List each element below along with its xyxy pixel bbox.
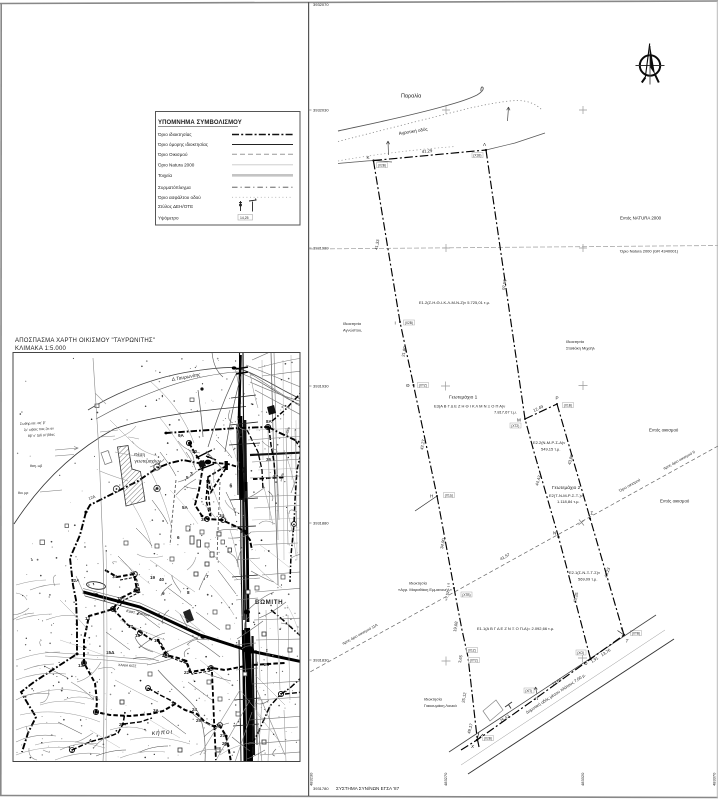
- svg-text:Γεωτεμάχιο 2: Γεωτεμάχιο 2: [552, 484, 581, 491]
- svg-text:Μ: Μ: [517, 418, 521, 423]
- svg-text:Όριο Natura 2000: Όριο Natura 2000: [157, 163, 195, 168]
- svg-text:Συρματόπλεγμα: Συρματόπλεγμα: [158, 184, 191, 190]
- svg-text:Ρ: Ρ: [556, 396, 559, 401]
- svg-text:41,29: 41,29: [422, 148, 434, 154]
- svg-text:Χ: Χ: [470, 744, 475, 749]
- svg-text:4: 4: [89, 738, 92, 743]
- svg-text:12,49: 12,49: [532, 404, 544, 413]
- svg-text:Γιακουμάκη Λουκά: Γιακουμάκη Λουκά: [424, 703, 457, 708]
- svg-text:Ε1.1(Α Β Γ Δ Ε Ζ Ν Ξ Ο Π-Α)= 2: Ε1.1(Α Β Γ Δ Ε Ζ Ν Ξ Ο Π-Α)= 2.092,66 τ.…: [477, 626, 554, 631]
- svg-text:Εντός οικισμού: Εντός οικισμού: [660, 499, 690, 504]
- svg-text:483230: 483230: [309, 772, 314, 786]
- svg-text:Όριο Natura 2000 (GR 4340001): Όριο Natura 2000 (GR 4340001): [619, 249, 679, 254]
- svg-text:Ε2(Τ-Ν-Μ-Ρ-Σ-Τ-)ν: Ε2(Τ-Ν-Μ-Ρ-Σ-Τ-)ν: [549, 493, 583, 498]
- svg-text:(ΧΠ): (ΧΠ): [525, 689, 532, 693]
- svg-text:(Χ1Δ): (Χ1Δ): [445, 494, 453, 498]
- svg-text:40: 40: [159, 577, 165, 582]
- svg-text:Σ: Σ: [591, 511, 594, 516]
- svg-text:14: 14: [112, 574, 118, 579]
- svg-text:9Α: 9Α: [178, 433, 185, 438]
- svg-text:7.817,67 τ.μ.: 7.817,67 τ.μ.: [494, 410, 517, 415]
- svg-text:(ΧΟ): (ΧΟ): [577, 651, 584, 655]
- svg-text:3931880: 3931880: [313, 521, 329, 526]
- svg-text:13,76: 13,76: [600, 647, 612, 657]
- svg-text:π: π: [535, 696, 538, 701]
- svg-text:ΣΥΣΤΗΜΑ ΣΥΝ/ΝΩΝ ΕΓΣΑ '87: ΣΥΣΤΗΜΑ ΣΥΝ/ΝΩΝ ΕΓΣΑ '87: [336, 786, 400, 791]
- svg-text:Αγνώστου,: Αγνώστου,: [343, 328, 362, 333]
- svg-text:Στύλος ΔΕΗ/ΟΤΕ: Στύλος ΔΕΗ/ΟΤΕ: [158, 203, 193, 209]
- svg-text:Υψόμετρο: Υψόμετρο: [158, 215, 179, 221]
- svg-text:Όριο Οικισμού: Όριο Οικισμού: [157, 151, 188, 157]
- svg-text:1,91: 1,91: [590, 655, 600, 664]
- svg-text:Η: Η: [430, 494, 433, 499]
- svg-text:(ΧΤ2): (ΧΤ2): [511, 424, 519, 428]
- svg-text:«Αγρ. Μαραθάκη Εμμανουήλ»: «Αγρ. Μαραθάκη Εμμανουήλ»: [398, 587, 453, 592]
- svg-text:Ιδιοκτησία: Ιδιοκτησία: [343, 321, 362, 326]
- svg-text:549,15 τ.μ.: 549,15 τ.μ.: [541, 447, 560, 452]
- svg-text:(ΧΤΖ): (ΧΤΖ): [419, 384, 427, 388]
- svg-text:Αγροτική οδός: Αγροτική οδός: [398, 125, 429, 136]
- svg-text:(ΧΤΒ): (ΧΤΒ): [462, 593, 470, 597]
- svg-text:3931830: 3931830: [313, 658, 329, 663]
- svg-text:ΥΠΟΜΝΗΜΑ ΣΥΜΒΟΛΙΣΜΟΥ: ΥΠΟΜΝΗΜΑ ΣΥΜΒΟΛΙΣΜΟΥ: [158, 120, 242, 126]
- svg-text:(Χ1Β): (Χ1Β): [473, 154, 481, 158]
- svg-text:5Α: 5Α: [182, 505, 189, 510]
- svg-text:22: 22: [184, 670, 190, 675]
- svg-text:3932070: 3932070: [313, 2, 329, 7]
- svg-text:Ιδιοκτησία: Ιδιοκτησία: [566, 339, 585, 344]
- svg-text:(Χ2Β): (Χ2Β): [405, 321, 413, 325]
- svg-text:3931930: 3931930: [313, 384, 329, 389]
- svg-text:κήποι: κήποι: [152, 729, 174, 737]
- svg-text:19,68: 19,68: [452, 620, 459, 632]
- svg-text:ΑΠΟΣΠΑΣΜΑ ΧΑΡΤΗ ΟΙΚΙΣΜΟΥ "ΤΑΥΡ: ΑΠΟΣΠΑΣΜΑ ΧΑΡΤΗ ΟΙΚΙΣΜΟΥ "ΤΑΥΡΩΝΙΤΗΣ": [15, 338, 155, 344]
- svg-text:προς όριο οικισμού 11Α: προς όριο οικισμού 11Α: [342, 623, 379, 646]
- svg-text:7: 7: [206, 574, 209, 579]
- svg-text:Τοιχεία: Τοιχεία: [158, 173, 172, 178]
- svg-text:14,25: 14,25: [240, 216, 249, 220]
- svg-text:(ΧΤΒ): (ΧΤΒ): [632, 632, 640, 636]
- svg-text:49,17: 49,17: [466, 722, 474, 734]
- svg-text:(Χ2Β): (Χ2Β): [378, 164, 386, 168]
- svg-text:Όριο ιδιοκτησίας: Όριο ιδιοκτησίας: [157, 132, 192, 137]
- svg-text:θαη. ωβ: θαη. ωβ: [30, 464, 42, 468]
- svg-text:8: 8: [187, 590, 190, 595]
- svg-text:41,57: 41,57: [499, 552, 511, 562]
- svg-text:3,65: 3,65: [457, 654, 463, 663]
- svg-text:8Α: 8Α: [266, 419, 273, 424]
- svg-text:15: 15: [117, 596, 123, 601]
- svg-text:3931780: 3931780: [313, 786, 329, 791]
- svg-text:34,90: 34,90: [439, 537, 446, 549]
- svg-text:γεωτεμαχίων: γεωτεμαχίων: [135, 459, 162, 464]
- svg-text:15: 15: [171, 701, 177, 706]
- svg-text:Όριο οικισμού: Όριο οικισμού: [618, 478, 641, 493]
- svg-text:Όριο ασφάλτου οδού: Όριο ασφάλτου οδού: [157, 194, 201, 200]
- svg-text:569,09 τ.μ.: 569,09 τ.μ.: [578, 577, 597, 582]
- svg-text:Ν: Ν: [553, 531, 556, 536]
- svg-text:(Χ1Β): (Χ1Β): [564, 404, 572, 408]
- svg-text:προς όριο οικισμού 9: προς όριο οικισμού 9: [663, 450, 696, 471]
- svg-text:45,25: 45,25: [572, 591, 579, 603]
- svg-text:Γεωτεμάχιο 1: Γεωτεμάχιο 1: [449, 394, 478, 401]
- svg-text:6: 6: [177, 535, 180, 540]
- svg-text:Θ: Θ: [406, 383, 410, 388]
- svg-text:3931980: 3931980: [313, 246, 329, 251]
- svg-text:Ι: Ι: [395, 321, 396, 326]
- svg-text:1.118,84 τ.μ.: 1.118,84 τ.μ.: [557, 499, 580, 504]
- svg-text:483370: 483370: [712, 772, 717, 786]
- svg-text:ΚΛΙΜΑΚΑ 1:5.000: ΚΛΙΜΑΚΑ 1:5.000: [15, 346, 66, 352]
- svg-text:θυι. μρ: θυι. μρ: [18, 491, 28, 495]
- svg-text:15Δ: 15Δ: [106, 650, 115, 655]
- svg-text:19: 19: [150, 575, 156, 580]
- svg-text:2: 2: [119, 722, 122, 727]
- svg-text:Λ: Λ: [483, 142, 487, 147]
- svg-text:Ιδιοκτησία: Ιδιοκτησία: [424, 697, 443, 702]
- svg-text:Ιδιοκτησία: Ιδιοκτησία: [409, 581, 428, 586]
- svg-text:25,42: 25,42: [499, 713, 511, 723]
- svg-text:(Χ2Β): (Χ2Β): [484, 737, 492, 741]
- svg-text:483270: 483270: [443, 772, 448, 786]
- svg-text:Παραλία: Παραλία: [401, 94, 421, 100]
- svg-text:21,80: 21,80: [401, 345, 408, 357]
- svg-text:44,43: 44,43: [534, 474, 542, 486]
- svg-text:Σταθάκη Μιχαήλ: Σταθάκη Μιχαήλ: [566, 346, 595, 351]
- svg-text:13: 13: [85, 616, 91, 621]
- svg-text:Εντός NATURA 2000: Εντός NATURA 2000: [620, 216, 662, 221]
- svg-text:25,12: 25,12: [461, 691, 468, 703]
- svg-text:Ε2.1(Σ-Ν-Ξ-Τ-Σ)ν: Ε2.1(Σ-Ν-Ξ-Τ-Σ)ν: [569, 570, 600, 575]
- svg-text:42,27: 42,27: [419, 438, 426, 450]
- svg-text:(ΧΤ2): (ΧΤ2): [470, 659, 478, 663]
- svg-text:Εντός οικισμού: Εντός οικισμού: [649, 428, 679, 433]
- svg-text:(Χ1Ζ): (Χ1Ζ): [468, 649, 476, 653]
- svg-text:Ε3(Α Β Γ Δ Ε Ζ Η Θ Ι Κ Λ Μ Ν Ξ: Ε3(Α Β Γ Δ Ε Ζ Η Θ Ι Κ Λ Μ Ν Ξ Ο Π Α)ν: [434, 404, 505, 409]
- svg-text:Ε2.2(Ν-Μ-Ρ-Σ-Α)ν: Ε2.2(Ν-Μ-Ρ-Σ-Α)ν: [533, 440, 565, 445]
- svg-text:6: 6: [230, 484, 233, 490]
- svg-text:3Α: 3Α: [153, 708, 160, 713]
- svg-text:Τ: Τ: [626, 639, 630, 644]
- svg-text:483320: 483320: [580, 772, 585, 786]
- svg-text:Ε1.2(Ζ-Η-Θ-Ι-Κ-Λ-Μ-Ν-Ζ)ν 5.725: Ε1.2(Ζ-Η-Θ-Ι-Κ-Λ-Μ-Ν-Ζ)ν 5.725,01 τ.μ.: [419, 300, 490, 305]
- svg-text:3932030: 3932030: [313, 108, 329, 113]
- svg-text:Όριο όμορης ιδιοκτησίας: Όριο όμορης ιδιοκτησίας: [157, 141, 209, 147]
